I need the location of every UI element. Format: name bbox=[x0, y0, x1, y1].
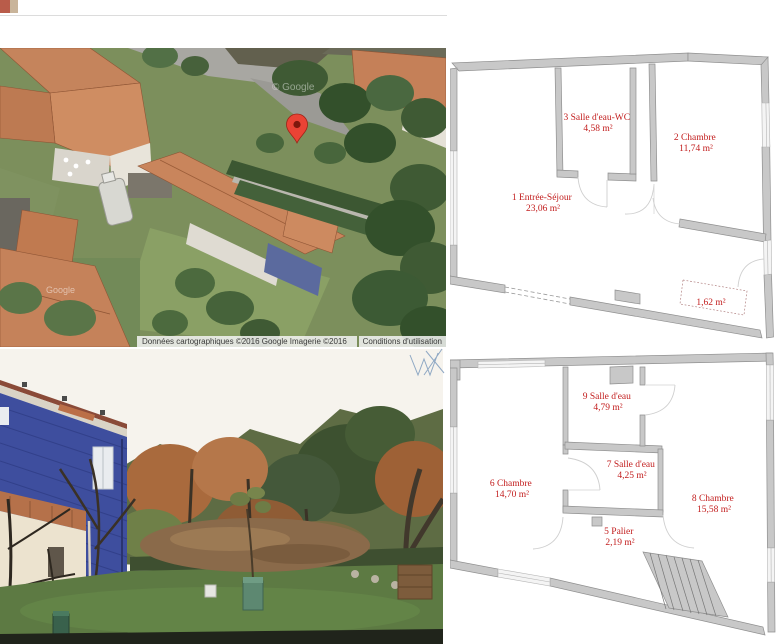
room-label-entree-sejour: 1 Entrée-Séjour 23,06 m² bbox=[512, 193, 574, 214]
horizontal-divider bbox=[0, 15, 447, 16]
room-label-sde7: 7 Salle d'eau 4,25 m² bbox=[607, 460, 658, 481]
entry-opening-dashed bbox=[505, 287, 570, 304]
floor-plan-upstairs: 9 Salle d'eau 4,79 m² 7 Salle d'eau 4,25… bbox=[450, 350, 776, 644]
top-left-image-fragment bbox=[0, 0, 18, 13]
aerial-map-scene: © Google Google bbox=[0, 48, 446, 347]
room-label-chambre8: 8 Chambre 15,58 m² bbox=[692, 494, 736, 515]
aerial-map-image: © Google Google Données cartographiques … bbox=[0, 48, 446, 347]
floor-plan-upstairs-drawing: 9 Salle d'eau 4,79 m² 7 Salle d'eau 4,25… bbox=[450, 350, 776, 644]
floor-plan-ground-drawing: 3 Salle d'eau-WC 4,58 m² 2 Chambre 11,74… bbox=[450, 47, 776, 347]
listing-composite: © Google Google Données cartographiques … bbox=[0, 0, 776, 644]
map-attribution-bar: Données cartographiques ©2016 Google Ima… bbox=[137, 336, 446, 347]
floor-plan-ground: 3 Salle d'eau-WC 4,58 m² 2 Chambre 11,74… bbox=[450, 47, 776, 347]
room-label-nook: 1,62 m² bbox=[696, 298, 725, 308]
room-label-sde-wc: 3 Salle d'eau-WC 4,58 m² bbox=[564, 113, 633, 134]
garden-photo-scene bbox=[0, 349, 443, 644]
room-label-chambre6: 6 Chambre 14,70 m² bbox=[490, 479, 534, 500]
room-label-sde9: 9 Salle d'eau 4,79 m² bbox=[583, 392, 634, 413]
room-label-palier5: 5 Palier 2,19 m² bbox=[604, 527, 636, 548]
walls-ground bbox=[450, 53, 774, 338]
map-attribution-text: Données cartographiques ©2016 Google Ima… bbox=[137, 336, 357, 347]
room-label-chambre2: 2 Chambre 11,74 m² bbox=[674, 133, 718, 154]
google-watermark-bottom: Google bbox=[46, 285, 75, 295]
garden-photo-image bbox=[0, 349, 443, 644]
terms-of-use-link[interactable]: Conditions d'utilisation bbox=[359, 336, 446, 347]
wx-sketch-lines bbox=[410, 349, 444, 375]
google-watermark-top: © Google bbox=[272, 82, 315, 93]
plan-sketch-mark bbox=[408, 347, 450, 379]
